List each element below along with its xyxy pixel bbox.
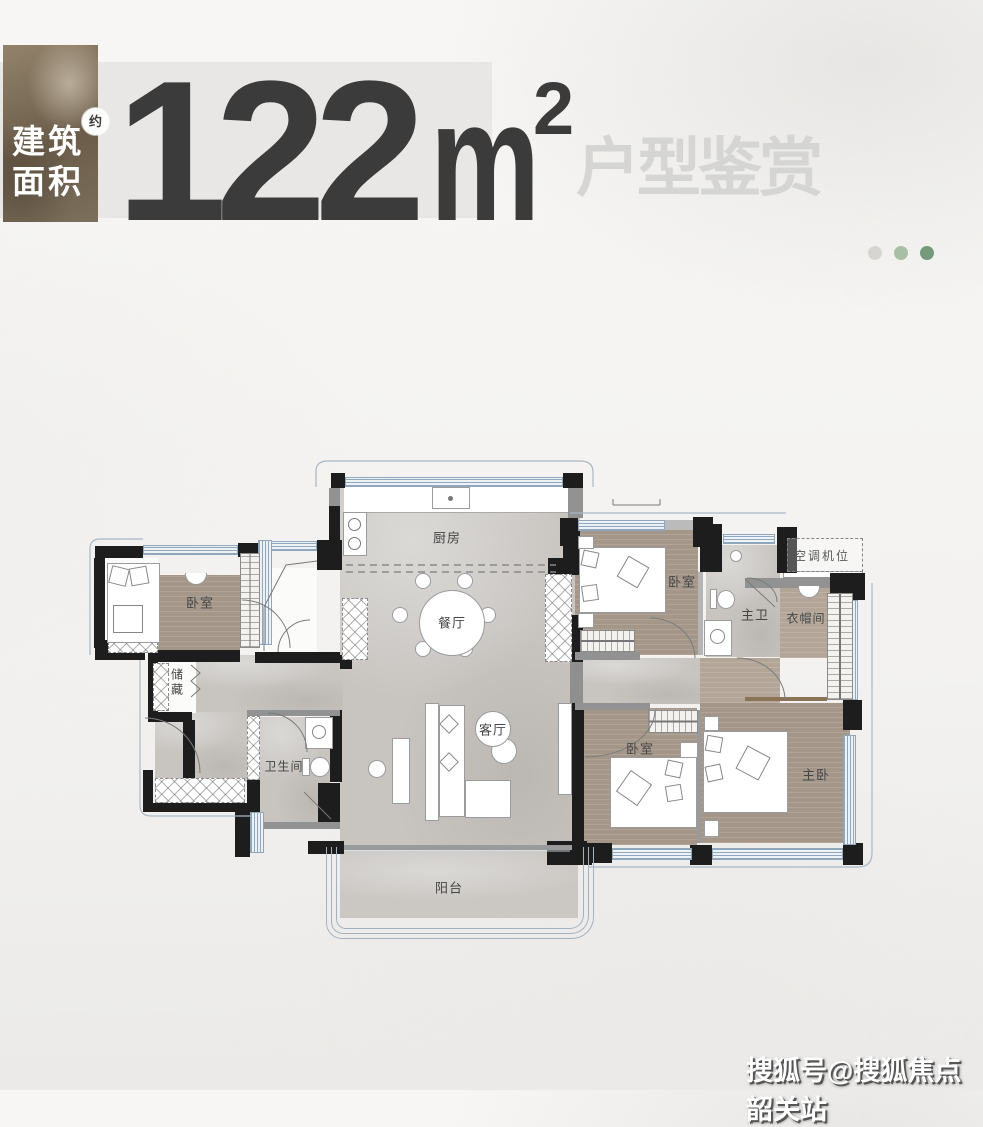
room-label-balcony: 阳台 <box>435 878 463 897</box>
carousel-dots <box>868 245 938 261</box>
room-label-master-bedroom: 主卧 <box>802 765 830 784</box>
area-label-box: 建筑 面积 <box>3 45 98 222</box>
room-label-bedroom-top-right: 卧室 <box>668 572 696 591</box>
promo-page: { "header": { "area_box": { "line1": "建筑… <box>0 0 983 1090</box>
area-label-line2: 面积 <box>12 164 84 200</box>
room-label-bathroom: 卫生间 <box>264 758 303 775</box>
page-subtitle: 户型鉴赏 <box>576 132 820 204</box>
room-label-storage: 储藏 <box>169 668 186 698</box>
carousel-dot-1[interactable] <box>868 246 882 260</box>
area-exponent: 2 <box>533 72 574 146</box>
area-value: 122 <box>116 52 414 252</box>
area-unit: m <box>430 75 540 247</box>
area-label-line1: 建筑 <box>12 124 84 160</box>
room-label-master-bath: 主卫 <box>741 605 769 624</box>
floor-plan: 空调机位 <box>88 455 880 943</box>
room-label-bedroom-bottom: 卧室 <box>626 739 654 758</box>
door-arcs-and-outline-layer <box>88 455 880 943</box>
approx-badge: 约 <box>82 108 109 135</box>
room-label-bedroom-left: 卧室 <box>186 593 214 612</box>
room-label-cloakroom: 衣帽间 <box>786 610 825 627</box>
room-label-dining: 餐厅 <box>438 613 466 632</box>
carousel-dot-3[interactable] <box>920 246 934 260</box>
room-label-kitchen: 厨房 <box>433 528 461 547</box>
carousel-dot-2[interactable] <box>894 246 908 260</box>
room-label-living: 客厅 <box>479 720 507 739</box>
watermark: 搜狐号@搜狐焦点韶关站 <box>746 1049 983 1127</box>
